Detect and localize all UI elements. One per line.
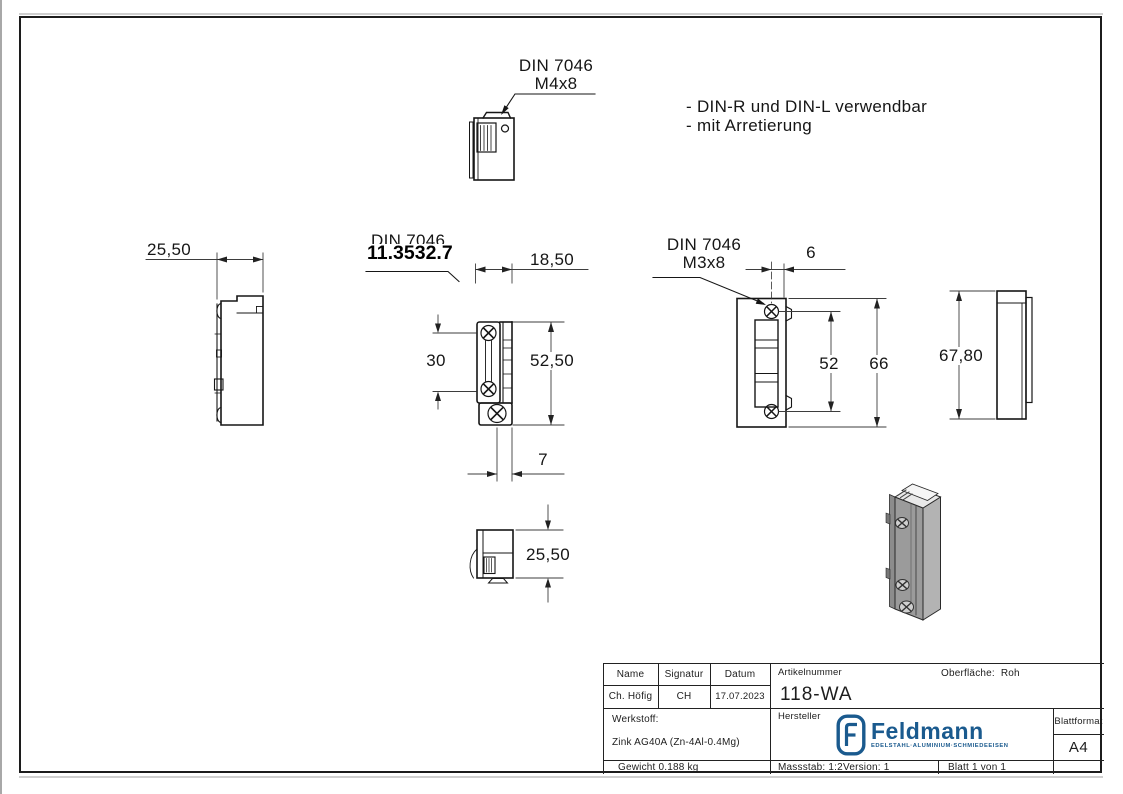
left-side-view xyxy=(215,296,264,425)
dim-back-offset xyxy=(746,264,845,297)
feldmann-logo-brand: Feldmann xyxy=(871,721,1009,743)
callout-back-screw-line1: DIN 7046 xyxy=(664,236,744,254)
iso-tab xyxy=(886,513,890,524)
dim-left-width xyxy=(146,253,263,299)
phillips-screw-icon xyxy=(900,601,914,613)
value-blattformat: A4 xyxy=(1053,734,1104,760)
header-signatur: Signatur xyxy=(658,663,710,685)
phillips-screw-icon xyxy=(765,305,779,319)
phillips-screw-icon xyxy=(481,326,496,341)
feldmann-logo-tagline: EDELSTAHL·ALUMINIUM·SCHMIEDEEISEN xyxy=(871,743,1009,749)
iso-view xyxy=(886,484,941,620)
dim-label-back-height: 66 xyxy=(862,355,896,373)
label-oberflaeche: Oberfläche: xyxy=(941,668,995,679)
label-blattformat: Blattformat xyxy=(1053,708,1104,734)
surface-field: Oberfläche: Roh xyxy=(941,668,1020,679)
titleblock-line xyxy=(770,663,771,774)
phillips-screw-icon xyxy=(896,518,909,529)
titleblock-line xyxy=(603,760,1104,761)
iso-right-face xyxy=(923,497,941,620)
back-view xyxy=(653,262,792,427)
note-arretierung: - mit Arretierung xyxy=(686,116,812,135)
label-artikelnummer: Artikelnummer xyxy=(778,667,842,678)
callout-top-screw-line1: DIN 7046 xyxy=(516,57,596,75)
dim-label-front-offset: 7 xyxy=(536,451,550,469)
screw-side-icon xyxy=(477,123,496,152)
phillips-screw-icon xyxy=(488,405,506,423)
dim-label-front-width: 18,50 xyxy=(530,251,574,269)
front-view xyxy=(366,272,512,426)
value-signatur: CH xyxy=(658,685,710,708)
value-gewicht: Gewicht 0.188 kg xyxy=(618,762,698,773)
bottom-view xyxy=(470,530,513,583)
dim-label-back-offset: 6 xyxy=(802,244,820,262)
drawing-sheet: DIN 7046 M4x8 - DIN-R und DIN-L verwendb… xyxy=(0,0,1123,794)
note-din-variants: - DIN-R und DIN-L verwendbar xyxy=(686,97,927,116)
callout-top-screw-line2: M4x8 xyxy=(516,75,596,93)
dim-front-height xyxy=(513,322,564,425)
iso-tab xyxy=(886,568,890,579)
value-datum: 17.07.2023 xyxy=(710,685,770,708)
value-blatt: Blatt 1 von 1 xyxy=(948,762,1006,773)
dim-label-side-height: 67,80 xyxy=(936,347,986,365)
leader-arrow xyxy=(756,299,766,306)
callout-back-screw: DIN 7046 M3x8 xyxy=(664,236,744,272)
value-oberflaeche: Roh xyxy=(1001,668,1020,679)
callout-top-screw: DIN 7046 M4x8 xyxy=(516,57,596,93)
dim-label-left-width: 25,50 xyxy=(147,241,191,259)
value-werkstoff: Zink AG40A (Zn-4Al-0.4Mg) xyxy=(612,737,740,748)
part-number-stamp: 11.3532.7 xyxy=(366,244,456,265)
value-version: Version: 1 xyxy=(843,762,889,773)
value-name: Ch. Höfig xyxy=(603,685,658,708)
value-artikelnummer: 118-WA xyxy=(780,684,853,706)
leader-arrow xyxy=(501,105,509,115)
pin-hole-icon xyxy=(502,125,509,132)
label-werkstoff: Werkstoff: xyxy=(612,714,659,725)
feldmann-logo: Feldmann EDELSTAHL·ALUMINIUM·SCHMIEDEEIS… xyxy=(836,712,1009,758)
dim-label-bottom-depth: 25,50 xyxy=(525,546,571,564)
iso-faceplate-edge xyxy=(890,495,896,610)
phillips-screw-icon xyxy=(481,382,496,397)
screw-side-icon xyxy=(484,557,495,574)
dim-label-front-screw-spacing: 30 xyxy=(424,352,448,370)
dim-label-front-height: 52,50 xyxy=(527,352,577,370)
value-massstab: Massstab: 1:2 xyxy=(778,762,843,773)
header-name: Name xyxy=(603,663,658,685)
dim-label-back-screw-spacing: 52 xyxy=(812,355,846,373)
top-view xyxy=(470,94,596,180)
header-datum: Datum xyxy=(710,663,770,685)
countersunk-screwhead-icon xyxy=(483,113,511,119)
titleblock-line xyxy=(603,708,1104,709)
right-side-view xyxy=(997,291,1032,419)
phillips-screw-icon xyxy=(896,580,909,591)
callout-back-screw-line2: M3x8 xyxy=(664,254,744,272)
label-hersteller: Hersteller xyxy=(778,711,821,722)
titleblock-line xyxy=(938,760,939,774)
feldmann-logo-mark-icon xyxy=(836,714,866,756)
